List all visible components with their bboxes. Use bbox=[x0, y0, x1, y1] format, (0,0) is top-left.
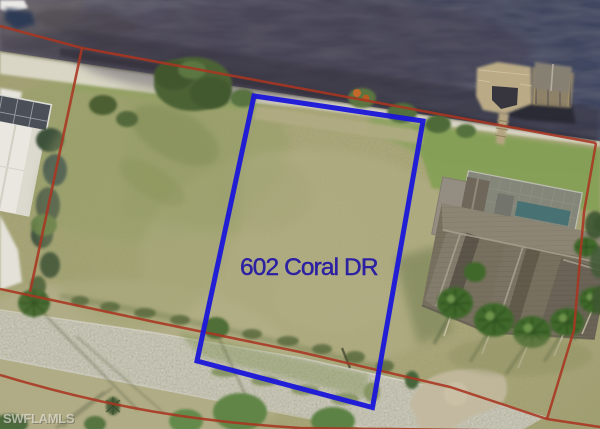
svg-text:SWFLAMLS: SWFLAMLS bbox=[3, 411, 75, 426]
svg-text:602 Coral DR: 602 Coral DR bbox=[240, 254, 378, 281]
